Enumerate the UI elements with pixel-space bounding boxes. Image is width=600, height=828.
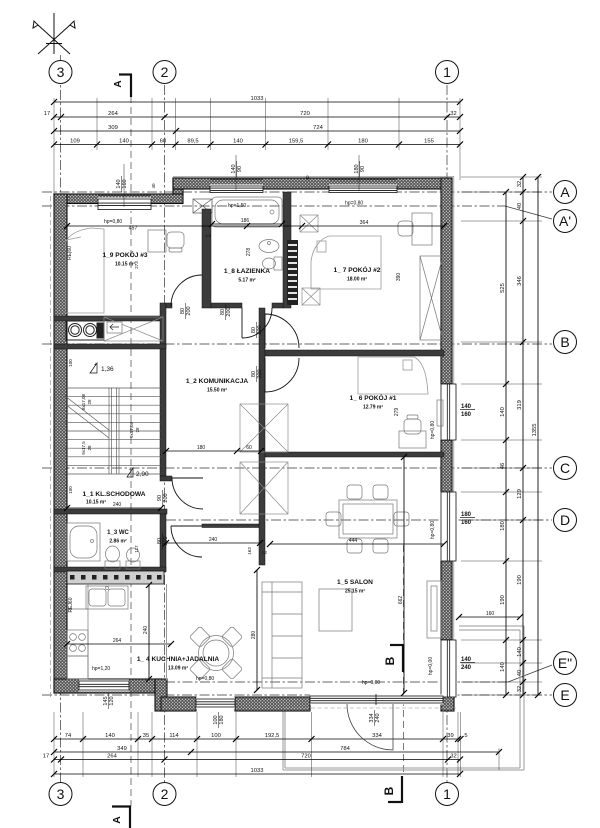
svg-text:240: 240 bbox=[209, 537, 218, 543]
svg-text:hp=0,80: hp=0,80 bbox=[196, 676, 214, 682]
svg-text:160: 160 bbox=[486, 611, 495, 617]
svg-text:10.15 m²: 10.15 m² bbox=[86, 500, 106, 506]
svg-text:160: 160 bbox=[461, 520, 472, 526]
svg-text:hp=0,80: hp=0,80 bbox=[104, 219, 122, 225]
svg-text:724: 724 bbox=[313, 125, 323, 131]
svg-text:155: 155 bbox=[424, 139, 434, 145]
svg-text:REJ60: REJ60 bbox=[68, 597, 74, 612]
svg-text:18.00 m²: 18.00 m² bbox=[347, 277, 367, 283]
svg-text:B: B bbox=[560, 334, 569, 350]
svg-text:3: 3 bbox=[57, 64, 65, 80]
svg-text:12.79 m²: 12.79 m² bbox=[363, 405, 383, 411]
svg-text:140: 140 bbox=[119, 139, 129, 145]
svg-text:28: 28 bbox=[135, 427, 140, 433]
svg-text:180: 180 bbox=[219, 715, 225, 724]
svg-text:159,5: 159,5 bbox=[289, 139, 304, 145]
svg-text:9x17,5: 9x17,5 bbox=[81, 441, 86, 455]
svg-text:A: A bbox=[111, 816, 123, 824]
svg-text:662: 662 bbox=[398, 596, 404, 605]
svg-text:60: 60 bbox=[246, 445, 252, 451]
svg-text:32: 32 bbox=[450, 754, 456, 760]
svg-text:1_9 POKÓJ #3: 1_9 POKÓJ #3 bbox=[102, 250, 147, 259]
svg-text:100: 100 bbox=[68, 486, 73, 494]
svg-text:390: 390 bbox=[396, 273, 402, 282]
svg-text:278: 278 bbox=[246, 248, 252, 257]
svg-text:1_ 7 POKÓJ #2: 1_ 7 POKÓJ #2 bbox=[334, 265, 381, 274]
svg-text:1,36: 1,36 bbox=[101, 366, 114, 373]
svg-text:39: 39 bbox=[447, 733, 453, 739]
svg-text:40: 40 bbox=[517, 203, 523, 209]
svg-text:264: 264 bbox=[107, 754, 117, 760]
svg-text:C: C bbox=[560, 460, 570, 476]
svg-text:200: 200 bbox=[257, 369, 263, 378]
svg-text:364: 364 bbox=[360, 220, 369, 226]
svg-text:784: 784 bbox=[340, 746, 350, 752]
svg-text:1355: 1355 bbox=[532, 424, 538, 437]
svg-text:hp=0,80: hp=0,80 bbox=[345, 201, 363, 207]
svg-text:1_1 KL.SCHODOWA: 1_1 KL.SCHODOWA bbox=[82, 491, 145, 498]
svg-text:15.50 m²: 15.50 m² bbox=[207, 388, 227, 394]
svg-text:720: 720 bbox=[300, 111, 310, 117]
svg-text:180: 180 bbox=[461, 512, 472, 518]
svg-text:1033: 1033 bbox=[251, 96, 264, 102]
svg-text:200: 200 bbox=[226, 307, 232, 316]
svg-text:200: 200 bbox=[257, 325, 263, 334]
svg-text:200: 200 bbox=[163, 493, 169, 502]
svg-text:5.17 m²: 5.17 m² bbox=[238, 278, 256, 284]
svg-text:349: 349 bbox=[117, 746, 127, 752]
svg-text:hp=1,50: hp=1,50 bbox=[228, 203, 246, 209]
svg-text:+: + bbox=[94, 362, 97, 368]
svg-text:109: 109 bbox=[70, 139, 80, 145]
svg-text:17: 17 bbox=[43, 754, 49, 760]
svg-text:A': A' bbox=[559, 213, 571, 229]
svg-text:140: 140 bbox=[517, 647, 523, 657]
svg-text:A: A bbox=[560, 184, 570, 200]
svg-text:89,5: 89,5 bbox=[187, 139, 198, 145]
svg-text:35: 35 bbox=[143, 733, 149, 739]
svg-text:L2: L2 bbox=[206, 233, 212, 238]
svg-text:140: 140 bbox=[500, 662, 506, 672]
svg-text:1033: 1033 bbox=[251, 768, 264, 774]
svg-text:117: 117 bbox=[134, 545, 139, 553]
svg-text:240: 240 bbox=[375, 713, 381, 722]
svg-text:9x17,08: 9x17,08 bbox=[129, 421, 134, 438]
svg-text:180: 180 bbox=[197, 445, 206, 451]
svg-text:190: 190 bbox=[500, 595, 506, 605]
svg-text:200: 200 bbox=[186, 306, 192, 315]
svg-text:2: 2 bbox=[161, 786, 169, 802]
svg-text:140: 140 bbox=[461, 657, 472, 663]
svg-text:200: 200 bbox=[163, 536, 169, 545]
svg-text:190: 190 bbox=[517, 575, 523, 585]
svg-text:60: 60 bbox=[160, 139, 166, 145]
svg-text:525: 525 bbox=[500, 283, 506, 293]
svg-text:B: B bbox=[383, 656, 397, 665]
svg-text:1: 1 bbox=[443, 64, 451, 80]
svg-text:279: 279 bbox=[394, 408, 400, 417]
svg-text:25.15 m²: 25.15 m² bbox=[345, 589, 365, 595]
svg-text:40: 40 bbox=[151, 183, 156, 189]
svg-text:1_2 KOMUNIKACJA: 1_2 KOMUNIKACJA bbox=[186, 378, 249, 385]
svg-text:100: 100 bbox=[211, 733, 221, 739]
svg-text:40: 40 bbox=[305, 175, 310, 181]
svg-text:100: 100 bbox=[68, 359, 73, 367]
svg-text:346: 346 bbox=[517, 276, 523, 286]
svg-text:1_5 SALON: 1_5 SALON bbox=[337, 579, 373, 586]
svg-text:240: 240 bbox=[461, 665, 472, 671]
svg-text:+: + bbox=[129, 467, 132, 473]
svg-text:A: A bbox=[113, 80, 124, 87]
svg-text:hp=0,00: hp=0,00 bbox=[362, 680, 380, 686]
svg-text:hp=0,80: hp=0,80 bbox=[430, 421, 436, 439]
svg-text:180: 180 bbox=[500, 521, 506, 531]
svg-text:1_ 6 POKÓJ #1: 1_ 6 POKÓJ #1 bbox=[350, 393, 397, 402]
svg-text:D: D bbox=[560, 512, 570, 528]
svg-text:17: 17 bbox=[44, 111, 50, 117]
svg-text:192,5: 192,5 bbox=[265, 733, 280, 739]
svg-text:140: 140 bbox=[461, 404, 472, 410]
svg-text:240: 240 bbox=[113, 502, 122, 508]
svg-text:13.09 m²: 13.09 m² bbox=[168, 666, 188, 672]
svg-text:hp=1,20: hp=1,20 bbox=[92, 666, 110, 672]
svg-text:90: 90 bbox=[360, 166, 366, 172]
svg-text:28: 28 bbox=[87, 399, 92, 405]
svg-text:L2: L2 bbox=[262, 550, 268, 555]
svg-text:140: 140 bbox=[105, 733, 115, 739]
svg-text:46: 46 bbox=[500, 463, 506, 469]
svg-text:334: 334 bbox=[372, 733, 382, 739]
svg-text:309: 309 bbox=[108, 125, 118, 131]
svg-text:8x17,08: 8x17,08 bbox=[81, 393, 86, 410]
svg-text:2: 2 bbox=[161, 64, 169, 80]
svg-text:32: 32 bbox=[517, 686, 523, 692]
svg-text:40: 40 bbox=[517, 670, 523, 676]
svg-text:264: 264 bbox=[108, 111, 118, 117]
svg-text:163: 163 bbox=[247, 547, 252, 555]
svg-text:E": E" bbox=[558, 655, 572, 671]
svg-text:444: 444 bbox=[349, 538, 358, 544]
svg-text:180: 180 bbox=[358, 139, 368, 145]
svg-text:5: 5 bbox=[464, 733, 467, 739]
svg-text:E: E bbox=[560, 687, 569, 703]
svg-text:720: 720 bbox=[301, 754, 311, 760]
svg-text:129: 129 bbox=[517, 489, 523, 499]
svg-text:2,90: 2,90 bbox=[136, 471, 149, 478]
svg-text:3: 3 bbox=[57, 786, 65, 802]
svg-text:120: 120 bbox=[109, 696, 115, 705]
svg-text:264: 264 bbox=[113, 638, 122, 644]
svg-text:2.86 m²: 2.86 m² bbox=[109, 539, 127, 545]
svg-text:90: 90 bbox=[237, 166, 243, 172]
svg-text:hp=0,00: hp=0,00 bbox=[428, 657, 434, 675]
svg-text:32: 32 bbox=[450, 111, 456, 117]
svg-text:457: 457 bbox=[129, 226, 138, 232]
svg-text:160: 160 bbox=[461, 412, 472, 418]
svg-text:74: 74 bbox=[65, 733, 72, 739]
svg-text:32: 32 bbox=[517, 181, 523, 187]
svg-text:140: 140 bbox=[500, 407, 506, 417]
svg-text:hp=0,80: hp=0,80 bbox=[430, 521, 436, 539]
svg-text:140: 140 bbox=[233, 139, 243, 145]
svg-text:280: 280 bbox=[251, 631, 257, 640]
svg-text:240: 240 bbox=[143, 626, 149, 635]
svg-text:319: 319 bbox=[517, 400, 523, 410]
svg-text:10.15 m²: 10.15 m² bbox=[115, 262, 135, 268]
svg-text:160: 160 bbox=[122, 179, 128, 188]
svg-text:B: B bbox=[382, 786, 396, 795]
svg-text:114: 114 bbox=[169, 733, 179, 739]
svg-text:RE|60: RE|60 bbox=[67, 246, 73, 260]
svg-text:1: 1 bbox=[443, 786, 451, 802]
svg-text:186: 186 bbox=[241, 218, 250, 224]
svg-text:1_3 WC: 1_3 WC bbox=[107, 530, 129, 536]
svg-text:273: 273 bbox=[134, 261, 139, 269]
svg-text:28: 28 bbox=[87, 445, 92, 451]
svg-text:1_8 ŁAZIENKA: 1_8 ŁAZIENKA bbox=[224, 268, 270, 275]
